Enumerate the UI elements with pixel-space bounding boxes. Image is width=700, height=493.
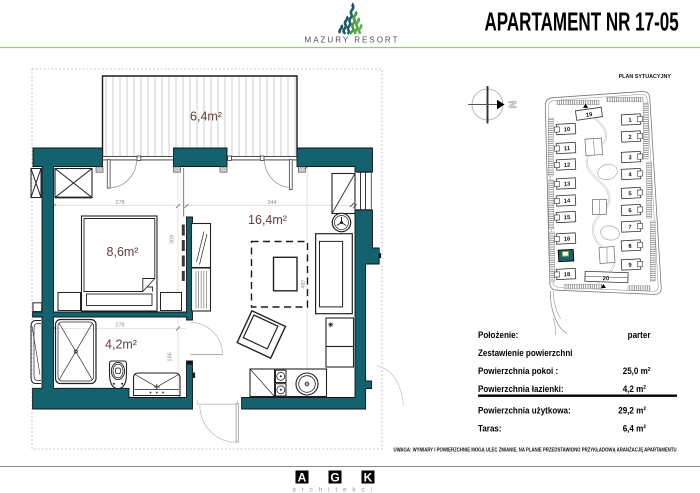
svg-text:6,4m²: 6,4m² [190, 110, 222, 124]
svg-text:UWAGA: WYMIARY I POWIERZCHNIE: UWAGA: WYMIARY I POWIERZCHNIE MOGĄ ULEC … [394, 446, 678, 452]
svg-text:13: 13 [564, 181, 572, 187]
svg-text:278: 278 [115, 323, 124, 329]
svg-text:N: N [506, 101, 517, 108]
svg-text:Powierzchnia pokoi :: Powierzchnia pokoi : [478, 365, 558, 376]
svg-text:18: 18 [564, 272, 572, 278]
svg-text:309: 309 [170, 235, 176, 244]
svg-text:PLAN SYTUACYJNY: PLAN SYTUACYJNY [619, 74, 672, 80]
svg-text:16,4m²: 16,4m² [248, 213, 287, 227]
svg-text:parter: parter [628, 329, 651, 340]
svg-text:8,6m²: 8,6m² [107, 245, 139, 259]
svg-text:Położenie:: Położenie: [478, 329, 518, 340]
svg-text:4,2m²: 4,2m² [105, 338, 137, 352]
svg-text:Powierzchnia łazienki:: Powierzchnia łazienki: [478, 383, 564, 394]
svg-text:14: 14 [564, 198, 572, 204]
svg-text:G: G [330, 471, 339, 485]
svg-text:APARTAMENT NR 17-05: APARTAMENT NR 17-05 [485, 7, 679, 37]
svg-text:Zestawienie powierzchni: Zestawienie powierzchni [478, 347, 573, 358]
svg-text:344: 344 [267, 200, 276, 206]
svg-text:K: K [364, 471, 373, 485]
svg-text:487: 487 [301, 279, 307, 288]
svg-text:16: 16 [564, 236, 572, 242]
svg-text:15: 15 [564, 215, 572, 221]
svg-text:Taras:: Taras: [478, 423, 502, 434]
svg-text:7: 7 [628, 225, 632, 231]
svg-text:2: 2 [628, 135, 632, 141]
svg-text:MAZURY RESORT: MAZURY RESORT [305, 36, 400, 45]
svg-text:12: 12 [564, 163, 571, 169]
svg-text:25,0 m²: 25,0 m² [623, 365, 651, 376]
svg-text:166: 166 [168, 352, 174, 361]
svg-text:278: 278 [115, 200, 124, 206]
svg-text:architekci: architekci [292, 487, 377, 493]
svg-text:Powierzchnia użytkowa:: Powierzchnia użytkowa: [478, 405, 571, 416]
svg-text:29,2 m²: 29,2 m² [618, 405, 646, 416]
svg-text:6,4 m²: 6,4 m² [623, 423, 646, 434]
svg-text:4,2 m²: 4,2 m² [623, 383, 646, 394]
svg-text:A: A [298, 471, 307, 485]
svg-text:11: 11 [564, 146, 571, 152]
svg-text:20: 20 [603, 276, 610, 282]
svg-text:10: 10 [564, 127, 571, 133]
